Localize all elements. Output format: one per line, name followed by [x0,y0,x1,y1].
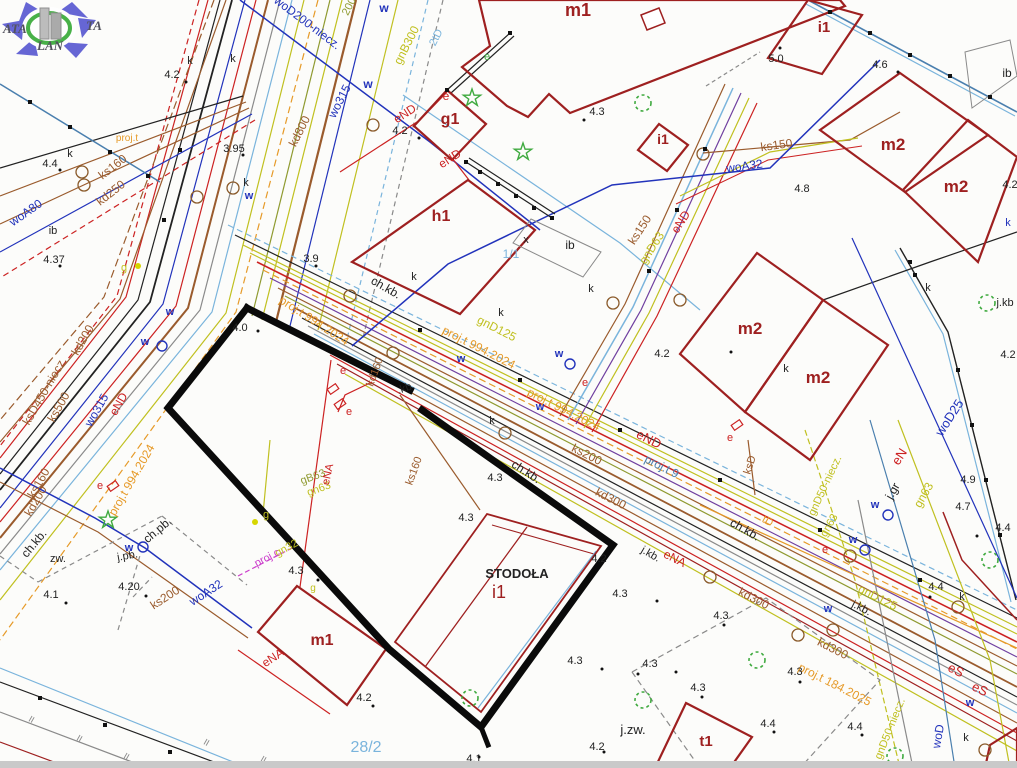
map-label: 2tD [427,27,445,48]
boundary-point-icon [28,100,32,104]
boundary-point-icon [464,160,468,164]
elevation-point-icon [723,624,726,627]
elevation-point-icon [185,81,188,84]
building-label-m2-b: m2 [944,177,969,196]
map-label: 4.2 [654,348,669,360]
young-tree-star-icon [463,89,480,105]
elevation-point-icon [317,579,320,582]
elevation-point-icon [656,600,659,603]
utility-line [352,60,880,346]
map-label: 4.0 [232,322,247,334]
map-label: w [140,336,150,348]
manhole-icon [367,119,379,131]
building-label-m2-c: m2 [738,319,763,338]
water-valve-icon [883,510,893,520]
map-label: 4.2 [164,69,179,81]
map-label: ks160 [404,455,425,487]
utility-line [250,253,1017,634]
map-label: II [75,733,84,744]
utility-line [852,238,1017,598]
map-label: 4.9 [960,474,975,486]
map-label: w [823,603,833,615]
map-label: 4.4 [42,158,57,170]
manhole-icon [387,347,399,359]
tree-icon [635,95,651,111]
map-label: j.zw. [619,722,645,737]
boundary-point-icon [103,723,107,727]
utility-line [0,0,245,508]
boundary-point-icon [984,478,988,482]
map-label: 4.20 [118,581,139,593]
map-label: j.kb [995,297,1013,309]
map-label: kd200 [21,483,50,519]
utility-line [895,250,1011,602]
map-label: k [243,177,249,189]
map-label: 4.2 [392,125,407,137]
boundary-point-icon [647,269,651,273]
building-label-g1: g1 [441,111,460,128]
tree-icon [749,652,765,668]
utility-line [592,103,757,432]
boundary-point-icon [703,147,707,151]
map-label: 4.3 [458,512,473,524]
water-valve-icon [157,341,167,351]
boundary-point-icon [418,328,422,332]
utility-line [425,527,527,667]
elevation-point-icon [779,47,782,50]
utility-line [285,296,1017,674]
utility-line [823,232,1017,300]
boundary-point-icon [913,273,917,277]
tree-icon [982,552,998,568]
map-label: proj.t 994.2024 [105,442,157,519]
map-label: w [244,190,254,202]
map-label: 4.6 [872,59,887,71]
watermark-text-lan: LAN [36,38,64,53]
map-label: k [783,363,789,375]
map-label: w [124,542,134,554]
boundary-point-icon [988,95,992,99]
map-label: 4.2 [589,741,604,753]
map-label: 4.7 [955,501,970,513]
elevation-point-icon [59,169,62,172]
highlighted-plot-boundary [481,727,488,745]
map-label: proj.t [116,133,138,144]
building-outline [641,8,665,30]
map-label: II [202,737,211,748]
boundary-point-icon [532,206,536,210]
elevation-point-icon [145,595,148,598]
elevation-point-icon [861,734,864,737]
elevation-point-icon [929,596,932,599]
map-label: j.gr [882,480,903,502]
map-label: 4.4 [847,721,862,733]
elevation-point-icon [897,71,900,74]
boundary-point-icon [908,53,912,57]
map-label: ks160 [96,151,130,182]
map-label: eN [888,445,910,467]
parcel-number-1-1: 1/1 [503,247,520,261]
map-label: 4.2 [1002,179,1017,191]
map-label: w [848,534,858,546]
elevation-point-icon [601,668,604,671]
map-label: j.kb. [638,544,662,565]
boundary-point-icon [178,148,182,152]
map-label: 4.3 [713,610,728,622]
map-label: k [959,591,965,603]
map-label: woD [929,723,947,750]
utility-line [235,235,1017,618]
map-label: 4.4 [995,522,1010,534]
boundary-point-icon [970,423,974,427]
boundary-point-icon [956,368,960,372]
elevation-point-icon [372,705,375,708]
map-label: w [965,697,975,709]
building-label-i1-north: i1 [818,19,831,36]
map-label: ib [565,238,575,252]
utility-line [0,0,199,446]
map-label: e [582,377,588,389]
map-viewport[interactable]: woD200-niecz.wo315kd800gnB3002tD2004.23.… [0,0,1017,768]
elevation-point-icon [976,535,979,538]
utility-line [808,0,1017,112]
map-label: 4.37 [43,254,64,266]
map-label: w [535,401,545,413]
map-label: e [346,406,352,418]
gas-point-icon [135,263,141,269]
map-label: w [554,348,564,360]
map-label: 3.9 [303,253,318,265]
map-label: gn63 [911,480,937,510]
map-label: 4.2 [1000,349,1015,361]
map-label: proj.c. [253,545,285,570]
boundary-point-icon [828,10,832,14]
utility-line [162,516,247,585]
map-label: eS [946,660,967,681]
boundary-point-icon [618,428,622,432]
map-label: e [484,51,490,63]
map-label: 4.3 [589,106,604,118]
map-label: w [456,353,466,365]
utility-line [302,318,1017,697]
elevation-point-icon [583,119,586,122]
map-label: ksD [742,454,759,476]
elevation-point-icon [701,696,704,699]
map-label: w [870,499,880,511]
map-label: 4.3 [612,588,627,600]
water-valve-icon [565,359,575,369]
utility-line [308,326,1017,705]
map-label: k [67,148,73,160]
map-label: k [230,53,236,65]
utility-line [243,245,1017,627]
map-label: e [727,432,733,444]
map-label: 4.4 [760,718,775,730]
utility-line [0,0,256,522]
boundary-point-icon [550,216,554,220]
boundary-point-icon [918,578,922,582]
elevation-point-icon [257,330,260,333]
map-label: w [165,306,175,318]
watermark-text-ta: TA [86,18,102,33]
building-label-m1-north: m1 [565,0,591,20]
manhole-icon [191,191,203,203]
watermark-logo: ATA TA LAN [0,0,118,64]
boundary-point-icon [718,478,722,482]
map-label: 3.95 [223,143,244,155]
map-label: g [263,509,269,521]
map-label: 4.8 [794,183,809,195]
elevation-point-icon [675,671,678,674]
map-label: 4.1 [43,589,58,601]
utility-line [278,288,1017,666]
watermark-text-ata: ATA [2,21,27,36]
map-label: woA80 [6,196,45,229]
map-label: g [310,583,316,594]
map-label: k [411,271,417,283]
map-label: 4.3 [567,655,582,667]
map-label: 5.0 [768,53,783,65]
boundary-point-icon [908,260,912,264]
map-label: eND [391,101,419,126]
power-box-icon [327,384,339,395]
map-label: ks150 [760,136,794,154]
boundary-point-icon [868,31,872,35]
map-canvas[interactable]: woD200-niecz.wo315kd800gnB3002tD2004.23.… [0,0,1017,768]
map-label: k [489,415,495,427]
tree-icon [979,295,995,311]
map-label: k [925,282,931,294]
map-label: eND [106,390,130,418]
elevation-point-icon [799,681,802,684]
power-box-icon [334,399,346,410]
map-label: ch.kb. [728,515,763,543]
elevation-point-icon [637,673,640,676]
manhole-icon [792,629,804,641]
manhole-icon [607,297,619,309]
utility-line [276,0,356,322]
manhole-icon [76,166,88,178]
map-label: e [340,365,346,377]
map-label: ib [1002,66,1012,80]
map-label: 4.4 [928,581,943,593]
boundary-point-icon [478,170,482,174]
map-label: eND [668,208,693,236]
utility-line [314,334,1017,713]
map-label: 4.2 [356,692,371,704]
boundary-point-icon [948,74,952,78]
boundary-point-icon [514,194,518,198]
building-outline [820,73,988,192]
map-label: wo315 [325,82,354,121]
utility-line [270,278,1017,657]
utility-line [330,355,1017,733]
map-label: g [121,262,127,274]
map-label: woD200-niecz. [271,0,344,52]
map-label: 200 [340,0,359,18]
building-label-m1-south: m1 [310,632,333,649]
map-label: gnD50-niecz. [806,454,844,518]
map-label: e [822,544,828,556]
utility-line [584,98,749,428]
boundary-point-icon [518,378,522,382]
map-label: w [362,77,373,91]
boundary-point-icon [168,750,172,754]
boundary-point-icon [38,696,42,700]
map-label: k [187,55,193,67]
elevation-point-icon [418,137,421,140]
young-tree-star-icon [514,143,531,159]
boundary-point-icon [146,174,150,178]
building-label-i1-barn: i1 [492,582,506,602]
map-label: ks200 [148,583,183,612]
map-label: 4.3 [690,682,705,694]
map-label: zw. [50,553,66,565]
map-label: 4.3 [642,658,657,670]
building-label-m2-a: m2 [881,135,906,154]
power-box-icon [731,420,743,431]
map-label: k [588,283,594,295]
map-label: 4.3 [288,565,303,577]
map-label: k [498,307,504,319]
boundary-point-icon [508,31,512,35]
map-label: e [97,480,103,492]
map-label: 4.3 [787,666,802,678]
map-label: x [523,234,529,246]
elevation-point-icon [65,602,68,605]
boundary-point-icon [108,150,112,154]
plot-label-stodola: STODOŁA [485,566,549,581]
utility-line [38,516,162,582]
tree-icon [635,692,651,708]
boundary-point-icon [496,182,500,186]
map-label: eNA [259,645,286,669]
building-label-h1: h1 [432,208,451,225]
map-label: eNA [320,462,336,486]
map-label: woD25 [931,396,966,439]
utility-line [400,395,480,510]
utility-line [0,668,248,768]
watermark-building-icon [40,8,49,39]
map-label: 4.3 [487,472,502,484]
map-label: gnD125 [475,313,519,345]
manhole-icon [674,294,686,306]
building-label-m2-d: m2 [806,368,831,387]
utility-line [238,650,330,714]
elevation-point-icon [730,351,733,354]
elevation-point-icon [773,731,776,734]
building-label-t1: t1 [699,733,712,750]
building-outline [513,219,601,277]
map-label: kd250 [93,177,128,208]
map-label: 4.2 [591,553,606,565]
highlighted-plot-boundary [168,308,613,727]
map-label: eND [634,426,664,451]
boundary-point-icon [68,125,72,129]
parcel-number-28-2: 28/2 [350,739,381,756]
map-label: e [443,89,450,103]
map-label: k [963,732,969,744]
boundary-point-icon [162,218,166,222]
map-label: k [1005,217,1011,229]
building-label-i1-small: i1 [657,131,669,147]
map-label: w [378,1,389,15]
bottom-edge-strip [0,761,1017,768]
utility-line [469,158,555,214]
map-label: gnD50-niecz. [873,697,908,762]
map-label: ib [49,225,58,237]
gas-point-icon [252,519,258,525]
